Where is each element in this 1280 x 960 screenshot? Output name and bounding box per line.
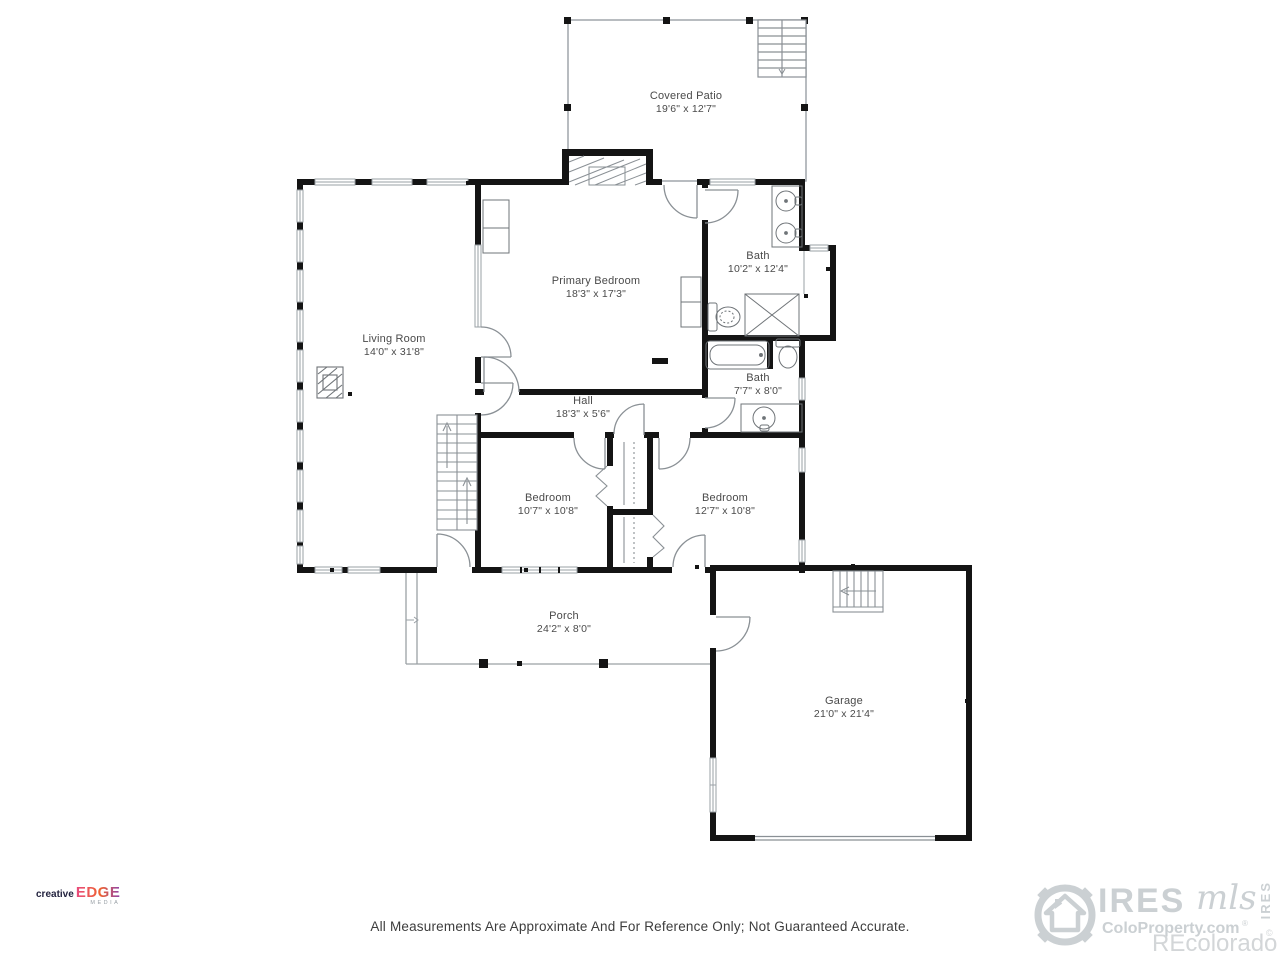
room-label-bath-2: Bath 7'7" x 8'0" [734,372,782,398]
mls-script-text: mls [1196,878,1257,918]
ires-house-icon [1032,882,1098,952]
room-name: Living Room [362,333,425,346]
ires-vertical-text: IRES [1258,881,1273,919]
room-label-hall: Hall 18'3" x 5'6" [556,395,610,421]
copyright-mark: © [1266,928,1273,938]
room-name: Porch [537,610,591,623]
garage-door [755,837,935,841]
shower-icon [745,294,799,336]
room-name: Covered Patio [650,90,722,103]
floor-plan-drawing [0,0,1280,960]
fireplace-icon [317,367,343,398]
bath2-vanity-sink-icon [741,404,802,432]
room-label-bath-1: Bath 10'2" x 12'4" [728,250,788,276]
ires-logo-text: IRES [1098,882,1185,921]
room-name: Bath [728,250,788,263]
room-dims: 18'3" x 17'3" [552,288,641,301]
dresser-icon [681,277,701,327]
room-dims: 18'3" x 5'6" [556,408,610,421]
room-name: Hall [556,395,610,408]
room-dims: 19'6" x 12'7" [650,103,722,116]
floorplan-page: Covered Patio 19'6" x 12'7" Primary Bedr… [0,0,1280,960]
room-name: Primary Bedroom [552,275,641,288]
bathtub-icon [706,341,769,369]
creative-edge-word-edge: EDGE [76,884,121,901]
chimney-icon [562,149,653,185]
creative-edge-logo: creative EDGE MEDIA [36,884,120,906]
room-label-covered-patio: Covered Patio 19'6" x 12'7" [650,90,722,116]
toilet-icon-bath1 [708,303,740,331]
room-name: Bedroom [695,492,755,505]
patio-stairs-icon [758,20,806,77]
room-dims: 21'0" x 21'4" [814,708,874,721]
room-name: Bath [734,372,782,385]
staircase-icon [437,415,477,530]
creative-edge-word-creative: creative [36,889,74,900]
room-dims: 12'7" x 10'8" [695,505,755,518]
toilet-icon-bath2 [776,339,800,368]
room-label-garage: Garage 21'0" x 21'4" [814,695,874,721]
room-dims: 10'7" x 10'8" [518,505,578,518]
room-label-bedroom-1: Bedroom 10'7" x 10'8" [518,492,578,518]
garage-stairs-icon [833,571,883,612]
recolorado-text: REcolorado [1152,930,1277,958]
room-name: Bedroom [518,492,578,505]
ires-watermark: IRES mls ColoProperty.com ® REcolorado ©… [1030,878,1280,960]
room-dims: 14'0" x 31'8" [362,346,425,359]
room-label-living-room: Living Room 14'0" x 31'8" [362,333,425,359]
room-dims: 7'7" x 8'0" [734,385,782,398]
room-label-bedroom-2: Bedroom 12'7" x 10'8" [695,492,755,518]
room-label-primary-bedroom: Primary Bedroom 18'3" x 17'3" [552,275,641,301]
room-dims: 24'2" x 8'0" [537,623,591,636]
room-dims: 10'2" x 12'4" [728,263,788,276]
tv-mark [652,358,668,364]
room-label-porch: Porch 24'2" x 8'0" [537,610,591,636]
room-name: Garage [814,695,874,708]
closet-icons [596,442,664,563]
wardrobe-icon [483,200,509,253]
bath1-vanity-sinks-icon [772,186,802,247]
registered-mark: ® [1242,919,1248,928]
